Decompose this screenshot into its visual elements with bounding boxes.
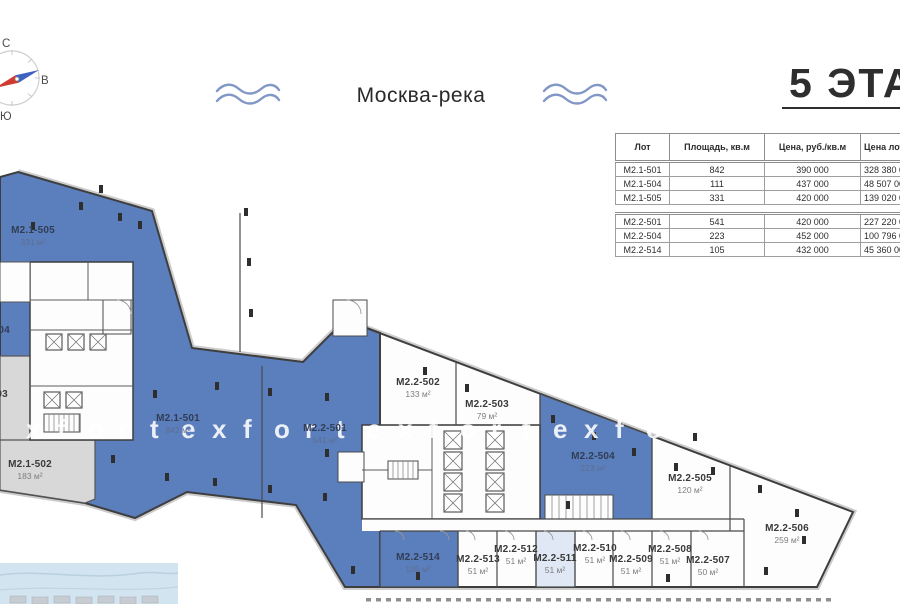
unit-area: 111 м² bbox=[0, 337, 10, 347]
unit-area: 842 м² bbox=[156, 425, 200, 435]
unit-area: 541 м² bbox=[303, 435, 347, 445]
plan-column bbox=[632, 448, 636, 456]
core-left-strip bbox=[0, 262, 30, 302]
table-cell: М2.1-505 bbox=[616, 191, 670, 205]
unit-area: 51 м² bbox=[494, 556, 538, 566]
unit-id: М2.2-510 bbox=[573, 543, 617, 555]
table-row: М2.2-501541420 000227 220 000 bbox=[616, 214, 900, 229]
table-cell: 437 000 bbox=[765, 177, 861, 191]
price-table-2: М2.2-501541420 000227 220 000М2.2-504223… bbox=[615, 212, 900, 257]
price-tables: ЛотПлощадь, кв.мЦена, руб./кв.мЦена лота… bbox=[615, 133, 900, 257]
unit-id: М2.2-506 bbox=[765, 523, 809, 535]
plan-column bbox=[325, 393, 329, 401]
watermark-letter: x bbox=[770, 414, 785, 444]
unit-id: М2.1-504 bbox=[0, 325, 10, 337]
watermark-letter: f bbox=[429, 414, 438, 444]
table-cell: М2.2-504 bbox=[616, 229, 670, 243]
price-table-1: ЛотПлощадь, кв.мЦена, руб./кв.мЦена лота… bbox=[615, 133, 900, 205]
compass: С В Ю bbox=[0, 28, 70, 128]
unit-label-М2.1-503[interactable]: М2.1-503м² bbox=[0, 389, 8, 411]
unit-label-М2.2-508[interactable]: М2.2-50851 м² bbox=[648, 544, 692, 566]
plan-column bbox=[215, 382, 219, 390]
table-cell: 48 507 000 bbox=[861, 177, 900, 191]
unit-area: 120 м² bbox=[668, 485, 712, 495]
table-row: М2.1-504111437 00048 507 000 bbox=[616, 177, 900, 191]
unit-id: М2.1-501 bbox=[156, 413, 200, 425]
plan-column bbox=[758, 485, 762, 493]
table-cell: М2.2-501 bbox=[616, 214, 670, 229]
table-cell: 139 020 000 bbox=[861, 191, 900, 205]
plan-column bbox=[325, 449, 329, 457]
watermark-letter: x bbox=[212, 414, 227, 444]
watermark-letter: f bbox=[243, 414, 252, 444]
watermark-letter: e bbox=[367, 414, 381, 444]
table-cell: М2.1-504 bbox=[616, 177, 670, 191]
unit-label-М2.2-505[interactable]: М2.2-505120 м² bbox=[668, 473, 712, 495]
unit-label-М2.2-503[interactable]: М2.2-50379 м² bbox=[465, 399, 509, 421]
unit-id: М2.2-505 bbox=[668, 473, 712, 485]
unit-area: 105 м² bbox=[396, 564, 440, 574]
floor-plan-page: xfortexfortexfortexfortexfor М2.1-505331… bbox=[0, 0, 900, 604]
table-header: Площадь, кв.м bbox=[670, 134, 765, 162]
unit-id: М2.1-505 bbox=[11, 225, 55, 237]
watermark-letter: o bbox=[88, 414, 104, 444]
table-cell: 390 000 bbox=[765, 162, 861, 177]
table-cell: 541 bbox=[670, 214, 765, 229]
plan-column bbox=[693, 433, 697, 441]
table-row: М2.2-514105432 00045 360 000 bbox=[616, 243, 900, 257]
unit-id: М2.1-502 bbox=[8, 459, 52, 471]
table-row: М2.2-504223452 000100 796 000 bbox=[616, 229, 900, 243]
table-cell: 420 000 bbox=[765, 191, 861, 205]
unit-id: М2.2-514 bbox=[396, 552, 440, 564]
unit-label-М2.2-507[interactable]: М2.2-50750 м² bbox=[686, 555, 730, 577]
unit-id: М2.2-504 bbox=[571, 451, 615, 463]
plan-column bbox=[566, 501, 570, 509]
unit-area: 51 м² bbox=[648, 556, 692, 566]
watermark-letter: x bbox=[26, 414, 41, 444]
unit-area: 79 м² bbox=[465, 411, 509, 421]
table-cell: 420 000 bbox=[765, 214, 861, 229]
plan-column bbox=[138, 221, 142, 229]
unit-label-М2.2-514[interactable]: М2.2-514105 м² bbox=[396, 552, 440, 574]
plan-column bbox=[795, 509, 799, 517]
watermark-letter: x bbox=[584, 414, 599, 444]
watermark-letter: r bbox=[119, 414, 129, 444]
unit-id: М2.2-502 bbox=[396, 377, 440, 389]
unit-label-М2.2-513[interactable]: М2.2-51351 м² bbox=[456, 554, 500, 576]
watermark-letter: r bbox=[863, 414, 873, 444]
plan-column bbox=[118, 213, 122, 221]
corridor bbox=[362, 519, 744, 531]
unit-id: М2.2-501 bbox=[303, 423, 347, 435]
unit-id: М2.1-503 bbox=[0, 389, 8, 401]
unit-area: 183 м² bbox=[8, 471, 52, 481]
unit-label-М2.2-502[interactable]: М2.2-502133 м² bbox=[396, 377, 440, 399]
plan-column bbox=[79, 202, 83, 210]
page-title: 5 ЭТАЖ bbox=[789, 60, 900, 107]
watermark-letter: f bbox=[57, 414, 66, 444]
unit-label-М2.2-506[interactable]: М2.2-506259 м² bbox=[765, 523, 809, 545]
compass-south-label: Ю bbox=[0, 111, 12, 123]
watermark-letter: e bbox=[553, 414, 567, 444]
compass-north-label: С bbox=[2, 38, 10, 50]
watermark-letter: o bbox=[646, 414, 662, 444]
table-cell: 331 bbox=[670, 191, 765, 205]
table-header: Цена, руб./кв.м bbox=[765, 134, 861, 162]
unit-area: 133 м² bbox=[396, 389, 440, 399]
title-underline bbox=[782, 107, 900, 109]
table-cell: 227 220 000 bbox=[861, 214, 900, 229]
wave-icon bbox=[215, 82, 281, 110]
unit-id: М2.2-503 bbox=[465, 399, 509, 411]
facade-ticks bbox=[366, 598, 831, 602]
table-cell: М2.2-514 bbox=[616, 243, 670, 257]
plan-column bbox=[323, 493, 327, 501]
unit-label-М2.2-510[interactable]: М2.2-51051 м² bbox=[573, 543, 617, 565]
watermark-letter: o bbox=[274, 414, 290, 444]
plan-column bbox=[99, 185, 103, 193]
unit-label-М2.1-502[interactable]: М2.1-502183 м² bbox=[8, 459, 52, 481]
table-cell: 223 bbox=[670, 229, 765, 243]
plan-column bbox=[153, 390, 157, 398]
plan-column bbox=[423, 367, 427, 375]
unit-id: М2.2-507 bbox=[686, 555, 730, 567]
plan-column bbox=[666, 574, 670, 582]
unit-label-М2.2-501[interactable]: М2.2-501541 м² bbox=[303, 423, 347, 445]
table-row: М2.1-505331420 000139 020 000 bbox=[616, 191, 900, 205]
unit-area: 51 м² bbox=[609, 566, 653, 576]
unit-label-М2.1-505[interactable]: М2.1-505331 м² bbox=[11, 225, 55, 247]
unit-label-М2.2-512[interactable]: М2.2-51251 м² bbox=[494, 544, 538, 566]
plan-column bbox=[764, 567, 768, 575]
unit-area: 50 м² bbox=[686, 567, 730, 577]
table-row: М2.1-501842390 000328 380 000 bbox=[616, 162, 900, 177]
unit-area: 51 м² bbox=[573, 555, 617, 565]
table-cell: 105 bbox=[670, 243, 765, 257]
table-cell: 328 380 000 bbox=[861, 162, 900, 177]
plan-column bbox=[111, 455, 115, 463]
unit-area: 331 м² bbox=[11, 237, 55, 247]
watermark-letter: f bbox=[615, 414, 624, 444]
watermark-letter: o bbox=[832, 414, 848, 444]
plan-column bbox=[165, 473, 169, 481]
table-header: Цена лота, руб. bbox=[861, 134, 900, 162]
plan-column bbox=[351, 566, 355, 574]
table-cell: 45 360 000 bbox=[861, 243, 900, 257]
unit-id: М2.2-511 bbox=[533, 553, 576, 565]
unit-id: М2.2-513 bbox=[456, 554, 500, 566]
table-cell: 842 bbox=[670, 162, 765, 177]
core-left bbox=[30, 262, 133, 440]
plan-column bbox=[213, 478, 217, 486]
plan-column bbox=[465, 384, 469, 392]
plan-column bbox=[244, 208, 248, 216]
plan-column bbox=[674, 463, 678, 471]
unit-id: М2.2-508 bbox=[648, 544, 692, 556]
watermark-letter: f bbox=[801, 414, 810, 444]
plan-column bbox=[268, 485, 272, 493]
unit-area: 223 м² bbox=[571, 463, 615, 473]
compass-pivot bbox=[15, 77, 19, 81]
table-cell: 452 000 bbox=[765, 229, 861, 243]
plan-column bbox=[247, 258, 251, 266]
watermark-letter: x bbox=[398, 414, 413, 444]
unit-label-М2.2-511[interactable]: М2.2-51151 м² bbox=[533, 553, 576, 575]
compass-east-label: В bbox=[41, 75, 49, 87]
table-cell: 100 796 000 bbox=[861, 229, 900, 243]
unit-area: м² bbox=[0, 401, 8, 411]
unit-label-М2.2-504[interactable]: М2.2-504223 м² bbox=[571, 451, 615, 473]
watermark-letter: t bbox=[522, 414, 531, 444]
unit-area: 51 м² bbox=[456, 566, 500, 576]
watermark-letter: r bbox=[677, 414, 687, 444]
unit-id: М2.2-512 bbox=[494, 544, 538, 556]
unit-area: 51 м² bbox=[533, 565, 576, 575]
table-cell: 432 000 bbox=[765, 243, 861, 257]
watermark-letter: e bbox=[739, 414, 753, 444]
compass-needle-blue bbox=[15, 70, 39, 83]
site-minimap bbox=[0, 563, 178, 604]
table-cell: 111 bbox=[670, 177, 765, 191]
river-label: Москва-река bbox=[357, 84, 486, 108]
unit-label-М2.1-504[interactable]: М2.1-504111 м² bbox=[0, 325, 10, 347]
unit-area: 259 м² bbox=[765, 535, 809, 545]
watermark-letter: t bbox=[708, 414, 717, 444]
table-header: Лот bbox=[616, 134, 670, 162]
plan-column bbox=[249, 309, 253, 317]
plan-column bbox=[268, 388, 272, 396]
unit-label-М2.1-501[interactable]: М2.1-501842 м² bbox=[156, 413, 200, 435]
wave-icon bbox=[542, 82, 608, 110]
table-cell: М2.1-501 bbox=[616, 162, 670, 177]
